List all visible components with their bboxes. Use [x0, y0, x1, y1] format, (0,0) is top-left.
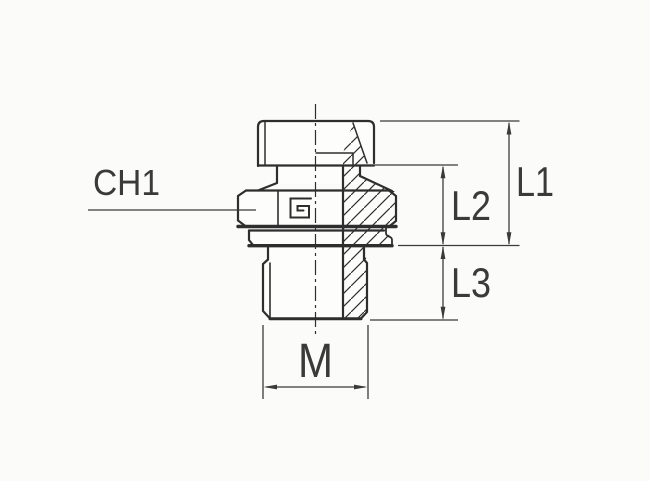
technical-drawing-page: CH1 L1 L2 L3 M — [0, 0, 650, 481]
label-ch1: CH1 — [93, 162, 160, 203]
fitting-cross-section-drawing: CH1 L1 L2 L3 M — [0, 0, 650, 481]
label-l3: L3 — [451, 259, 491, 306]
label-l1: L1 — [516, 158, 554, 205]
label-m: M — [298, 335, 333, 388]
label-l2: L2 — [451, 182, 491, 229]
